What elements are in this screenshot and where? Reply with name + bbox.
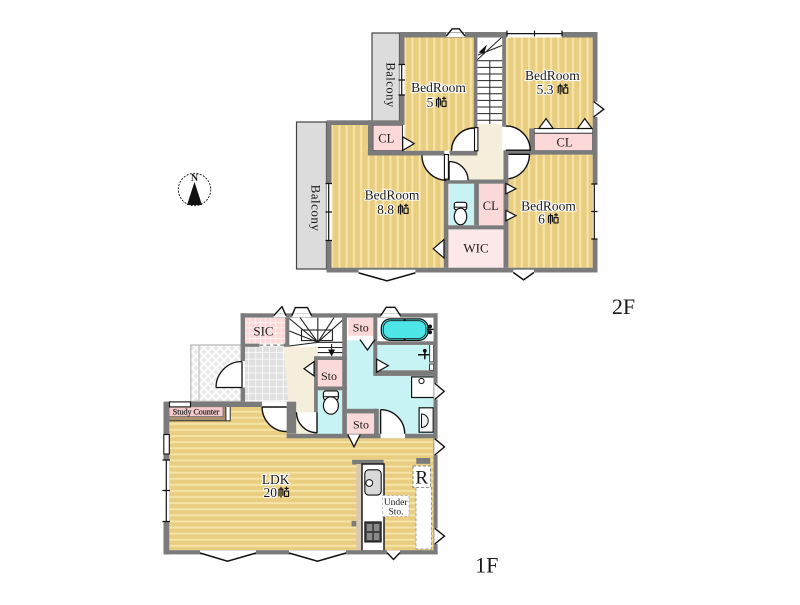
svg-text:BedRoom: BedRoom (411, 80, 466, 95)
svg-text:CL: CL (378, 132, 394, 146)
svg-text:Under: Under (384, 498, 409, 508)
svg-text:BedRoom: BedRoom (521, 199, 576, 214)
svg-text:CL: CL (557, 136, 573, 150)
svg-text:Balcony: Balcony (384, 62, 398, 107)
svg-text:Study Counter: Study Counter (173, 408, 220, 417)
svg-text:WIC: WIC (463, 241, 488, 256)
svg-text:Sto: Sto (353, 321, 369, 335)
svg-text:Sto.: Sto. (388, 508, 403, 518)
svg-text:BedRoom: BedRoom (525, 68, 580, 83)
svg-text:2F: 2F (612, 294, 635, 319)
svg-text:BedRoom: BedRoom (365, 188, 420, 203)
svg-text:8.8: 8.8 (377, 202, 394, 217)
svg-text:CL: CL (483, 199, 499, 213)
svg-text:1F: 1F (475, 553, 498, 578)
svg-text:SIC: SIC (253, 324, 273, 339)
svg-text:5.3: 5.3 (537, 82, 554, 97)
svg-text:R: R (415, 468, 428, 489)
svg-text:N: N (191, 173, 199, 184)
svg-text:Sto: Sto (321, 369, 337, 383)
svg-text:6: 6 (538, 212, 545, 227)
svg-text:5: 5 (427, 95, 434, 110)
svg-text:Sto: Sto (353, 418, 369, 432)
svg-text:20: 20 (264, 485, 278, 500)
svg-text:Balcony: Balcony (309, 185, 324, 232)
